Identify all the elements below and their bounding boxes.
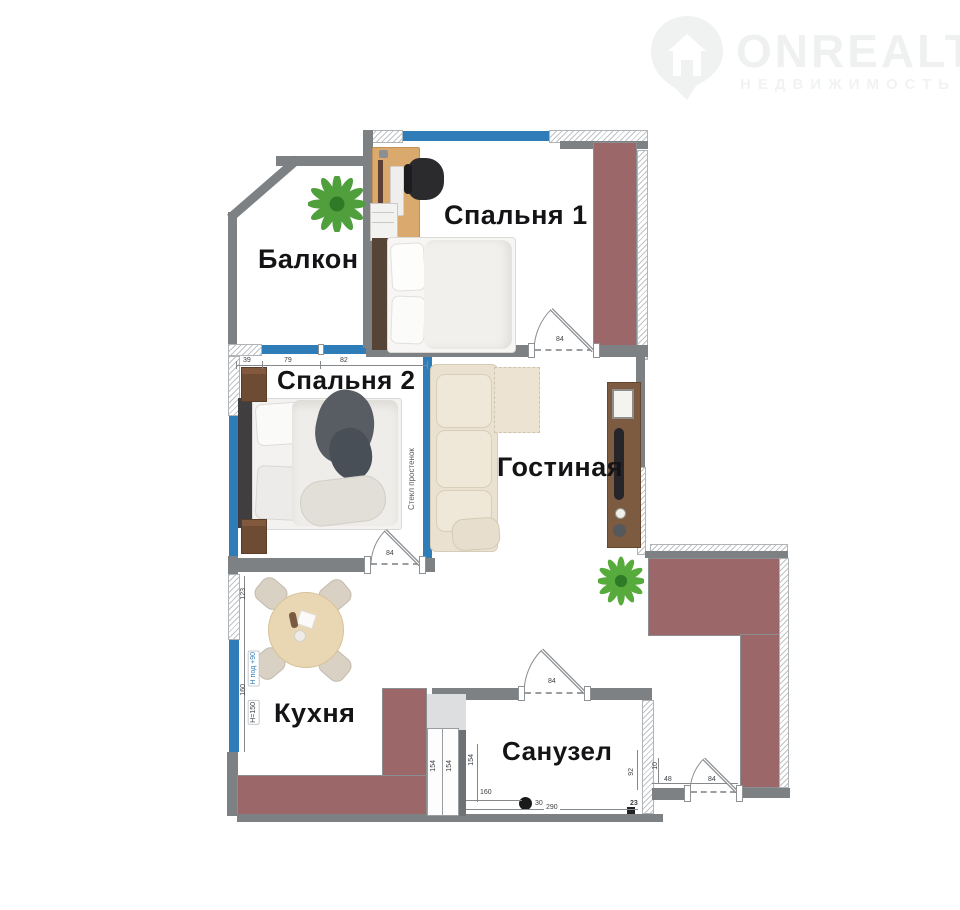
dim-label: 290: [544, 804, 560, 811]
dim-door-entrance: 84: [708, 776, 716, 783]
dim-label: 48: [664, 776, 672, 783]
door-jamb: [593, 343, 600, 358]
duvet: [424, 240, 512, 349]
potted-plant-icon: [308, 176, 366, 232]
pillow: [390, 242, 426, 292]
dim-label: 30: [535, 800, 543, 807]
door-jamb: [684, 785, 691, 802]
door-swing: [534, 292, 594, 352]
drawer-line: [372, 222, 394, 223]
picture-frame: [612, 389, 634, 419]
dim-line: [637, 750, 638, 790]
wall: [228, 558, 368, 572]
window: [403, 131, 549, 141]
speaker: [615, 508, 626, 519]
room-label-kitchen: Кухня: [274, 698, 355, 729]
window: [229, 416, 238, 556]
room-label-balcony: Балкон: [258, 244, 359, 275]
dim-line: [477, 744, 478, 802]
wall: [598, 345, 648, 357]
speaker: [613, 524, 626, 537]
dining-table: [268, 592, 344, 668]
wall-accent: [648, 558, 780, 636]
pillow: [390, 295, 426, 344]
door-jamb: [419, 556, 426, 574]
dim-label: 79: [284, 357, 292, 364]
window: [262, 345, 320, 354]
wall: [740, 788, 790, 798]
room-label-bedroom1: Спальня 1: [444, 200, 588, 231]
office-chair-back: [404, 164, 412, 194]
bed-headboard: [238, 398, 253, 528]
nightstand: [241, 367, 267, 402]
door-jamb: [518, 686, 525, 701]
room-label-bathroom: Санузел: [502, 736, 612, 767]
room-label-living: Гостиная: [497, 452, 623, 483]
window: [324, 345, 368, 354]
room-label-bedroom2: Спальня 2: [277, 365, 416, 396]
door-jamb: [584, 686, 591, 701]
dim-label: 123: [240, 588, 247, 600]
dim-label: 154: [468, 754, 475, 766]
office-chair: [408, 158, 444, 200]
dim-door-bedroom2: 84: [386, 550, 394, 557]
dim-tick: [236, 361, 237, 369]
wall-hatched: [637, 150, 648, 360]
wall-accent: [740, 634, 780, 788]
dim-label: 154: [446, 760, 453, 772]
door-swing: [690, 745, 738, 793]
window: [229, 640, 239, 752]
table-item: [294, 630, 306, 642]
brand-watermark: ONREALT НЕДВИЖИМОСТЬ: [648, 12, 953, 104]
potted-plant-icon: [598, 553, 644, 609]
door-jamb: [364, 556, 371, 574]
door-swing: [371, 516, 421, 566]
wall: [228, 212, 237, 348]
drawer-line: [372, 212, 394, 213]
wall-hatched: [228, 344, 262, 356]
cabinet: [427, 728, 459, 816]
kitchen-sill-note: Н под +90: [248, 650, 260, 686]
duct-shaft: [427, 694, 466, 730]
dim-label: 160: [240, 684, 247, 696]
wall-accent: [593, 142, 637, 347]
dim-label: 160: [480, 789, 492, 796]
brand-subtitle: НЕДВИЖИМОСТЬ: [740, 76, 956, 93]
dim-door-bedroom1: 84: [556, 336, 564, 343]
dim-label: 23: [630, 800, 638, 807]
wall: [652, 788, 688, 800]
sofa-cushion: [436, 374, 492, 428]
dim-label: 39: [243, 357, 251, 364]
dim-tick: [262, 361, 263, 369]
dim-label: 10: [652, 762, 659, 770]
floor-plan: ONREALT НЕДВИЖИМОСТЬ: [0, 0, 960, 910]
nightstand: [241, 519, 267, 554]
wall-hatched: [779, 558, 789, 788]
bed-headboard: [372, 238, 388, 350]
dim-door-bathroom: 84: [548, 678, 556, 685]
sofa-armrest: [451, 516, 501, 551]
dim-label: 154: [430, 760, 437, 772]
dim-label: 92: [628, 768, 635, 776]
kitchen-height-note: H=150: [248, 700, 260, 725]
cabinet-divider: [442, 728, 443, 816]
wall: [590, 688, 652, 700]
door-jamb: [736, 785, 743, 802]
sofa-cushion: [436, 430, 492, 488]
dim-label: 82: [340, 357, 348, 364]
house-pin-icon: [648, 14, 726, 102]
desk-item: [379, 150, 388, 158]
wall-hatched: [228, 574, 240, 640]
door-jamb: [528, 343, 535, 358]
glass-partition-label: Стекл простенок: [408, 398, 416, 510]
wall: [645, 551, 788, 558]
window-jamb: [318, 344, 324, 355]
wall-accent: [237, 775, 427, 815]
wall-accent: [382, 688, 427, 778]
dim-tick: [427, 361, 428, 369]
dim-line: [466, 800, 522, 801]
sofa-chaise: [494, 367, 540, 433]
brand-name: ONREALT: [736, 24, 960, 78]
dim-line: [244, 576, 245, 752]
wall-angled: [227, 156, 301, 222]
